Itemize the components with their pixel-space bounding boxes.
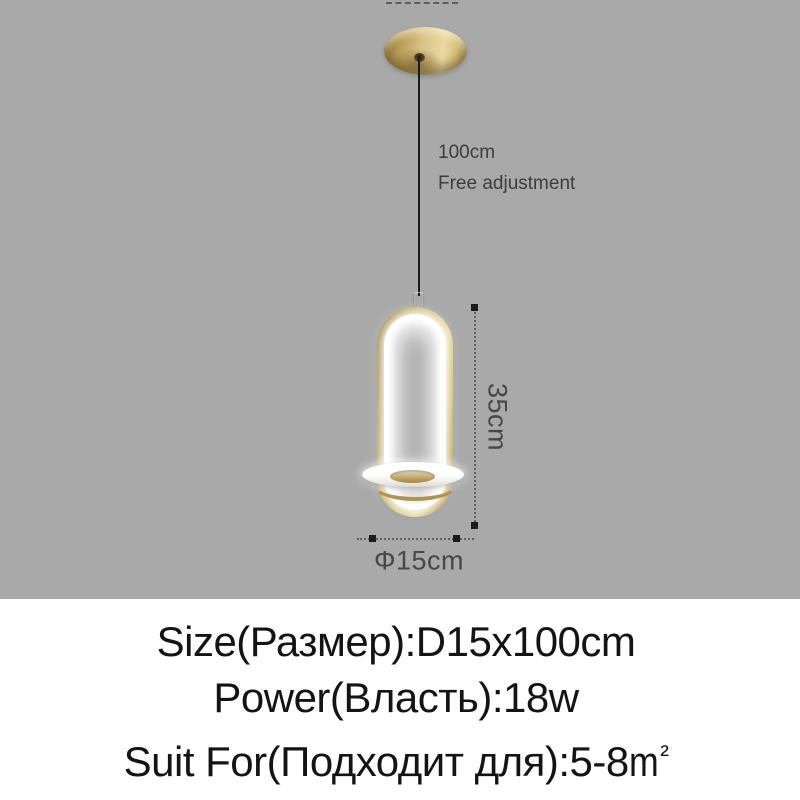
spec-power: Power(Власть):18w — [0, 670, 792, 726]
dimension-marker-right — [453, 535, 460, 542]
dimension-marker-bottom — [471, 522, 478, 529]
dimension-marker-top — [471, 304, 478, 311]
spec-suit: Suit For(Подходит для):5-8m² — [0, 726, 792, 790]
spec-suit-exponent: ² — [660, 739, 668, 769]
height-dimension-line — [474, 308, 476, 526]
diameter-dimension-label: Φ15cm — [374, 546, 464, 577]
top-dashed-line — [386, 2, 458, 4]
diffuser-ring — [362, 462, 464, 487]
ceiling-canopy — [384, 27, 467, 75]
dimension-marker-left — [369, 535, 376, 542]
diffuser-ring-hole — [390, 470, 435, 483]
spec-suit-text: Suit For(Подходит для):5-8 — [124, 738, 629, 785]
spec-suit-unit: m — [629, 734, 658, 790]
pendant-wire — [418, 56, 420, 296]
height-dimension-label: 35cm — [482, 383, 513, 451]
spec-size: Size(Размер):D15x100cm — [0, 614, 792, 670]
product-image: 100cm Free adjustment 35cm Φ15cm Size(Ра… — [0, 0, 800, 800]
cord-length-label: 100cm — [438, 142, 495, 164]
cord-note-label: Free adjustment — [438, 173, 575, 195]
spec-text-block: Size(Размер):D15x100cm Power(Власть):18w… — [0, 614, 792, 790]
